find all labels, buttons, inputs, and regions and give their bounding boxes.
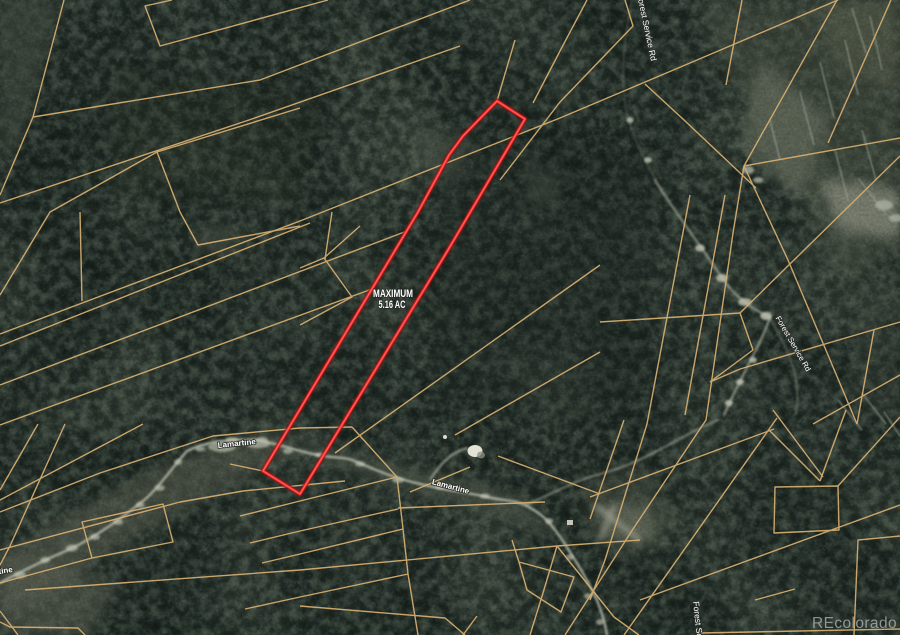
svg-text:5.16 AC: 5.16 AC <box>379 299 406 311</box>
svg-text:REcolorado: REcolorado <box>812 615 897 632</box>
